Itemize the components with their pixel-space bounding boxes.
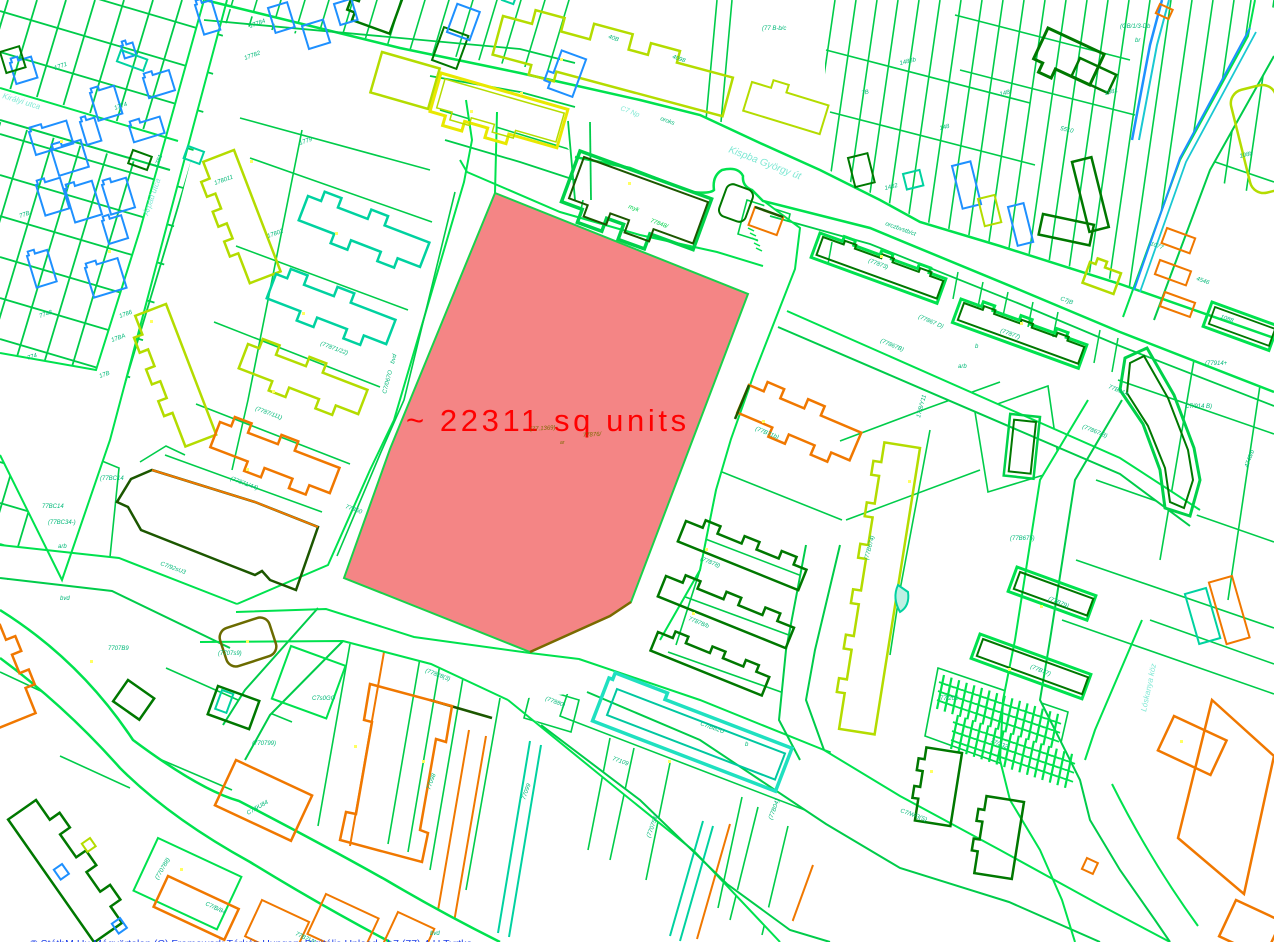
svg-text:(77BC14: (77BC14 xyxy=(100,476,124,482)
svg-text:77/202: 77/202 xyxy=(940,696,959,702)
svg-text:7707B9: 7707B9 xyxy=(108,646,129,652)
svg-text:(77B675): (77B675) xyxy=(1010,536,1035,542)
svg-text:(77BC34-): (77BC34-) xyxy=(48,520,76,526)
svg-text:77BC14: 77BC14 xyxy=(42,504,64,510)
svg-text:(77 B-b/c: (77 B-b/c xyxy=(762,26,786,32)
svg-text:~ 22311 sq units: ~ 22311 sq units xyxy=(406,403,690,438)
svg-text:(GB/1/3-Db: (GB/1/3-Db xyxy=(1120,24,1151,30)
svg-text:C7s0GO: C7s0GO xyxy=(312,696,336,702)
svg-text:(77914+: (77914+ xyxy=(1205,361,1228,367)
svg-text:(770799): (770799) xyxy=(252,741,276,747)
svg-text:© StáthM.Hu Mágyärtelep (C) Fr: © StáthM.Hu Mágyärtelep (C) Framework Té… xyxy=(30,938,472,942)
svg-text:ar: ar xyxy=(560,440,565,446)
svg-text:arb: arb xyxy=(958,364,967,370)
svg-text:arb: arb xyxy=(58,544,67,550)
svg-text:bvd: bvd xyxy=(60,596,70,602)
svg-text:(7707s9): (7707s9) xyxy=(218,651,242,657)
svg-text:bvd: bvd xyxy=(430,931,440,937)
svg-text:C7/914 B): C7/914 B) xyxy=(1185,404,1212,410)
